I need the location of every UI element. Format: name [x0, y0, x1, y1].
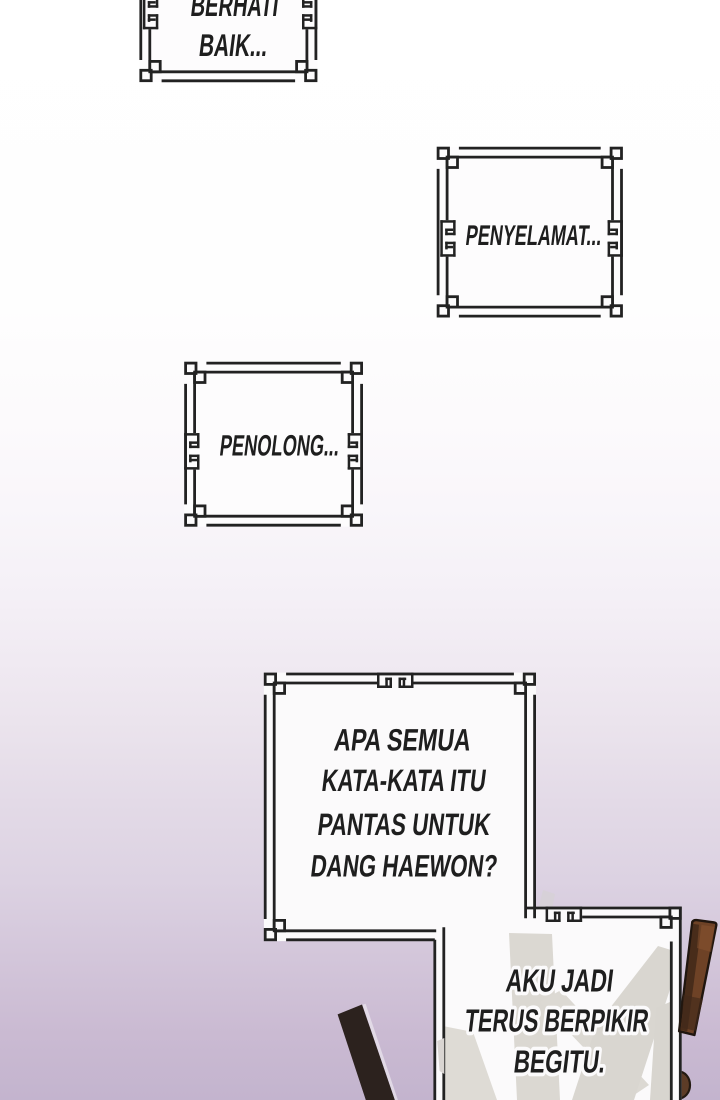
- svg-text:KATA-KATA ITU: KATA-KATA ITU: [320, 763, 488, 798]
- svg-text:PENOLONG...: PENOLONG...: [218, 429, 342, 462]
- svg-text:APA SEMUA: APA SEMUA: [332, 723, 473, 758]
- svg-text:BEGITU.: BEGITU.: [512, 1044, 608, 1080]
- svg-text:TERUS BERPIKIR: TERUS BERPIKIR: [463, 1003, 651, 1039]
- svg-text:AKU JADI: AKU JADI: [504, 963, 615, 999]
- svg-text:PENYELAMAT...: PENYELAMAT...: [464, 220, 604, 252]
- svg-text:PANTAS UNTUK: PANTAS UNTUK: [316, 807, 493, 842]
- svg-text:BAIK...: BAIK...: [197, 27, 270, 63]
- svg-text:BERHATI: BERHATI: [189, 0, 281, 23]
- svg-text:DANG HAEWON?: DANG HAEWON?: [309, 849, 500, 884]
